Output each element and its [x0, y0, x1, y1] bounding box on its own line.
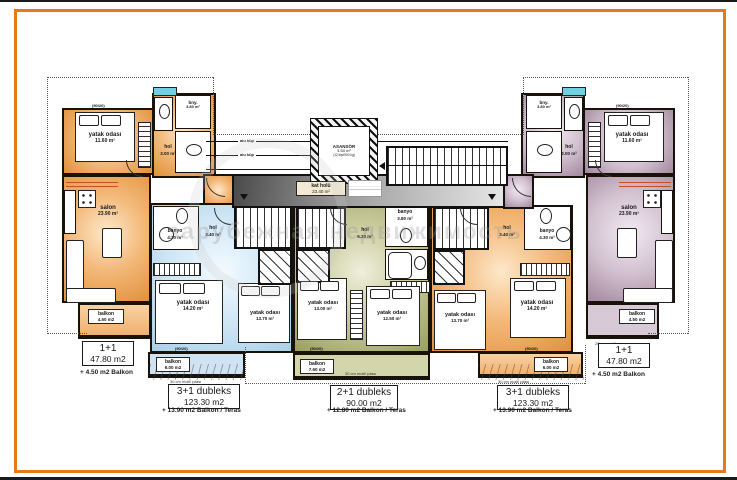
top-edge-line	[0, 0, 737, 2]
floor-plan: alu küp alu küp ASANSÖR 4.50 m² (12 kişi…	[0, 0, 737, 480]
watermark-text: зарубежная недвижимость	[168, 218, 523, 245]
